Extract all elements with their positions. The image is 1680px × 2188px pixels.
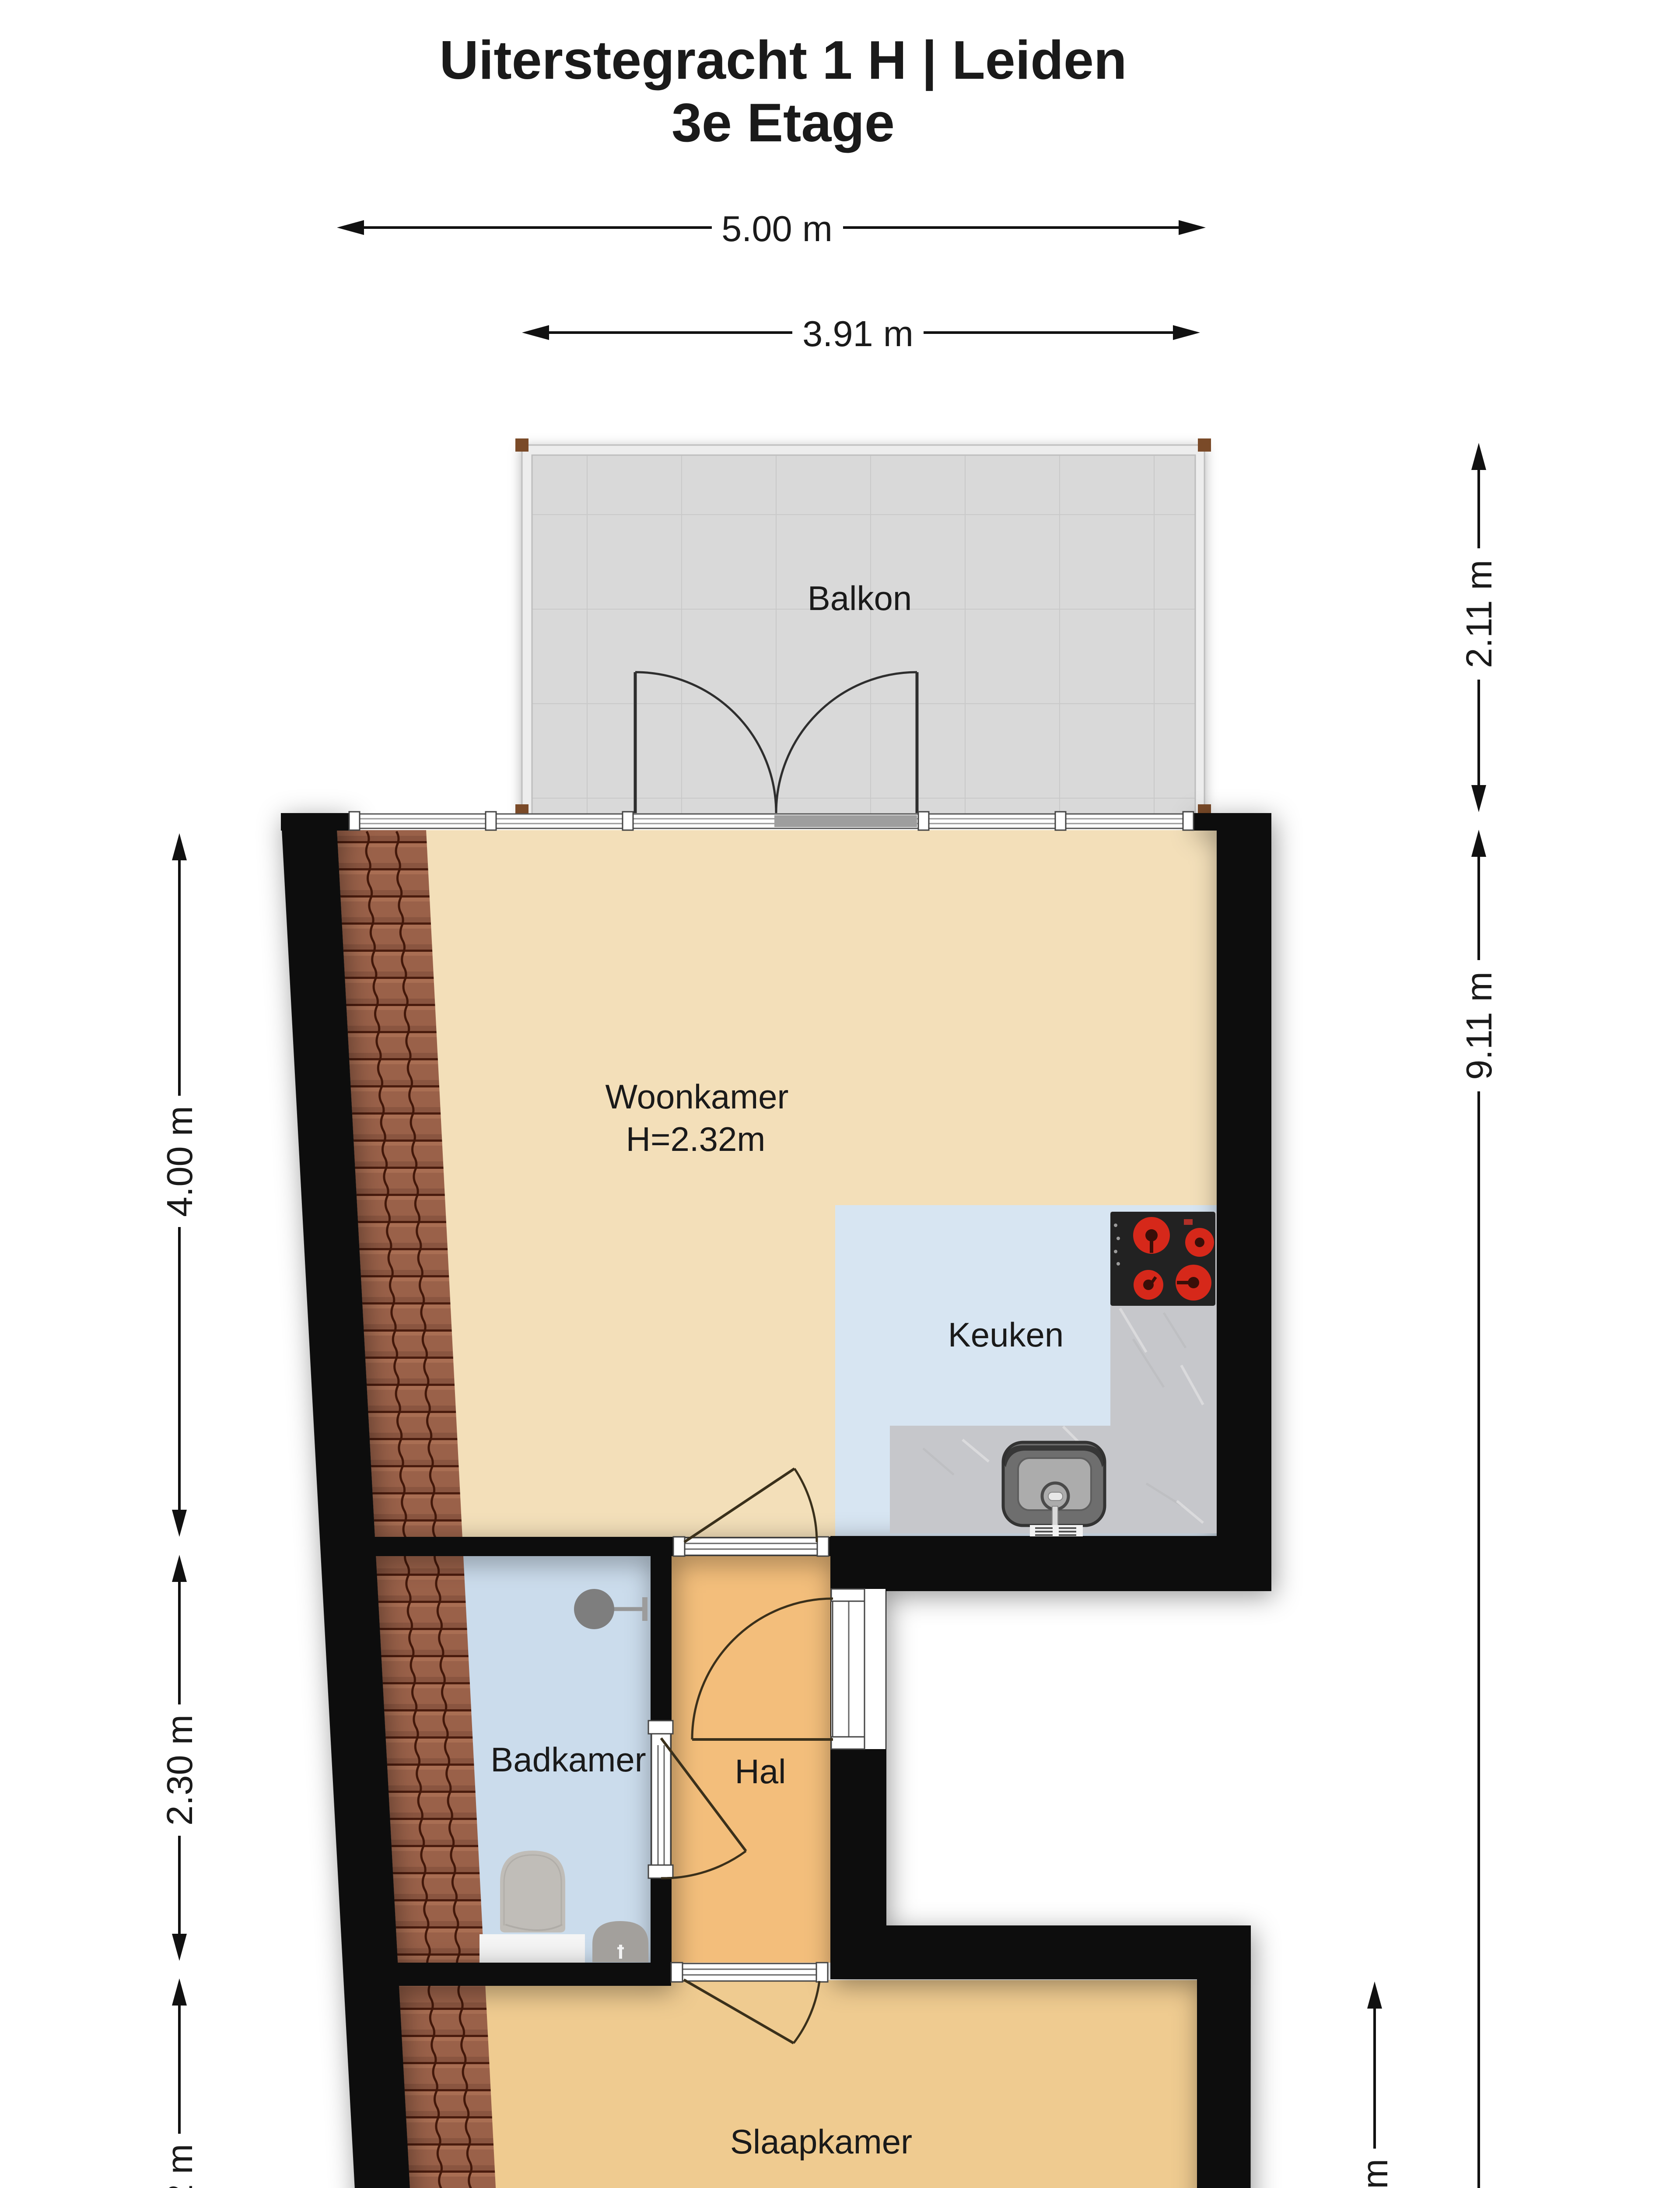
svg-text:4.00 m: 4.00 m: [159, 1106, 200, 1217]
svg-text:Hal: Hal: [735, 1752, 786, 1791]
svg-text:Balkon: Balkon: [808, 579, 912, 617]
svg-text:3e Etage: 3e Etage: [672, 93, 895, 153]
svg-text:Slaapkamer: Slaapkamer: [730, 2122, 912, 2161]
svg-text:5.00 m: 5.00 m: [721, 208, 833, 249]
svg-text:2.11 m: 2.11 m: [1459, 560, 1499, 668]
svg-text:Badkamer: Badkamer: [490, 1740, 646, 1779]
svg-text:Uiterstegracht 1 H | Leiden: Uiterstegracht 1 H | Leiden: [439, 30, 1127, 91]
svg-text:Woonkamer: Woonkamer: [605, 1077, 788, 1116]
svg-text:H=2.32m: H=2.32m: [626, 1120, 766, 1158]
svg-text:2.30 m: 2.30 m: [159, 1715, 200, 1826]
svg-text:2.52 m: 2.52 m: [159, 2144, 200, 2188]
svg-text:Keuken: Keuken: [948, 1315, 1064, 1354]
svg-text:2.73 m: 2.73 m: [1354, 2159, 1395, 2188]
svg-text:3.91 m: 3.91 m: [802, 313, 913, 354]
svg-text:9.11 m: 9.11 m: [1459, 971, 1499, 1080]
